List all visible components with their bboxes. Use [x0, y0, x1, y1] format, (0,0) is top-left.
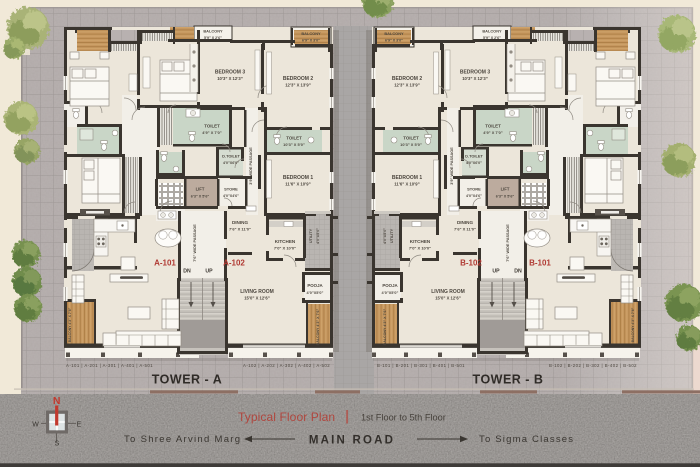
svg-text:BALCONY 4’3” X 7’6”: BALCONY 4’3” X 7’6” [631, 307, 635, 342]
svg-text:4’0”X6’0”: 4’0”X6’0” [466, 161, 482, 165]
svg-text:POOJA: POOJA [307, 283, 323, 288]
svg-text:D.TOILET: D.TOILET [222, 154, 240, 159]
svg-text:TOILET: TOILET [204, 124, 220, 129]
svg-text:BALCONY 4’3” X 7’6”: BALCONY 4’3” X 7’6” [383, 308, 387, 345]
svg-text:10’3” X 5’0”: 10’3” X 5’0” [400, 142, 422, 147]
svg-text:DINING: DINING [232, 220, 249, 225]
svg-text:6’3” X 5’6”: 6’3” X 5’6” [191, 195, 210, 199]
svg-text:BEDROOM 3: BEDROOM 3 [460, 70, 491, 76]
svg-text:E: E [77, 422, 82, 429]
svg-text:11’6” X 10’9”: 11’6” X 10’9” [394, 182, 419, 187]
svg-text:UTILITY: UTILITY [390, 228, 394, 243]
svg-text:7’6” X 11’0”: 7’6” X 11’0” [454, 227, 476, 232]
svg-text:BEDROOM 2: BEDROOM 2 [392, 76, 423, 82]
svg-text:UTILITY: UTILITY [309, 228, 313, 243]
svg-text:B-102 | B-202 | B-302 | B-402: B-102 | B-202 | B-302 | B-402 | B-502 [549, 363, 637, 368]
svg-text:10’3” X 12’3”: 10’3” X 12’3” [217, 76, 243, 81]
svg-text:Typical Floor Plan: Typical Floor Plan [238, 410, 335, 424]
svg-text:7’0” X 10’0”: 7’0” X 10’0” [409, 246, 431, 251]
svg-text:A-102 | A-202 | A-302 | A-402: A-102 | A-202 | A-302 | A-402 | A-502 [243, 363, 330, 368]
svg-text:A-101: A-101 [154, 259, 176, 268]
svg-text:4’9” X 7’0”: 4’9” X 7’0” [483, 130, 503, 135]
svg-text:TOILET: TOILET [403, 136, 419, 141]
svg-text:6’9” X 3’0”: 6’9” X 3’0” [385, 39, 403, 43]
svg-text:BEDROOM 2: BEDROOM 2 [283, 76, 314, 82]
svg-text:7’0” X 10’0”: 7’0” X 10’0” [274, 246, 296, 251]
svg-text:UP: UP [205, 269, 213, 275]
svg-text:12’3” X 13’9”: 12’3” X 13’9” [394, 83, 420, 88]
svg-text:POOJA: POOJA [382, 283, 398, 288]
svg-text:4’0”X4’6”: 4’0”X4’6” [223, 194, 239, 198]
svg-text:4’0”X5’0”: 4’0”X5’0” [307, 291, 324, 295]
svg-text:TOILET: TOILET [485, 124, 501, 129]
svg-text:BALCONY 4’3” X 7’6”: BALCONY 4’3” X 7’6” [316, 308, 320, 345]
svg-text:TOILET: TOILET [286, 136, 302, 141]
svg-text:To Shree Arvind Marg: To Shree Arvind Marg [124, 434, 241, 445]
svg-text:10’3” X 12’3”: 10’3” X 12’3” [462, 76, 488, 81]
svg-text:STORE: STORE [467, 187, 481, 192]
svg-text:A-101 | A-201 | A-301 | A-401: A-101 | A-201 | A-301 | A-401 | A-501 [66, 363, 153, 368]
svg-text:BEDROOM 3: BEDROOM 3 [215, 70, 246, 76]
svg-text:5’9” X 2’6”: 5’9” X 2’6” [483, 36, 501, 40]
svg-text:BEDROOM 1: BEDROOM 1 [392, 175, 423, 181]
svg-text:12’3” X 13’9”: 12’3” X 13’9” [285, 83, 311, 88]
svg-text:15’0” X 12’6”: 15’0” X 12’6” [435, 296, 461, 301]
svg-text:6’9” X 3’0”: 6’9” X 3’0” [302, 39, 320, 43]
svg-text:4’9” X 7’0”: 4’9” X 7’0” [202, 130, 222, 135]
svg-text:To Sigma Classes: To Sigma Classes [479, 434, 574, 445]
svg-text:DN: DN [514, 269, 522, 275]
svg-text:4’0”X5’0”: 4’0”X5’0” [382, 291, 399, 295]
svg-text:LIFT: LIFT [196, 187, 205, 192]
svg-text:TOWER - B: TOWER - B [473, 373, 544, 387]
svg-text:KITCHEN: KITCHEN [275, 239, 296, 244]
svg-text:BALCONY: BALCONY [203, 29, 223, 34]
svg-text:3’9” WIDE PASSAGE: 3’9” WIDE PASSAGE [450, 147, 454, 185]
svg-text:A-102: A-102 [223, 259, 245, 268]
svg-text:STORE: STORE [224, 187, 238, 192]
svg-text:BALCONY: BALCONY [301, 31, 321, 36]
svg-text:4’0”X5’0”: 4’0”X5’0” [316, 228, 320, 244]
svg-text:D.TOILET: D.TOILET [465, 154, 483, 159]
svg-text:7’6” WIDE PASSAGE: 7’6” WIDE PASSAGE [193, 224, 197, 262]
svg-text:BEDROOM 1: BEDROOM 1 [283, 175, 314, 181]
svg-text:BALCONY: BALCONY [384, 31, 404, 36]
svg-text:LIVING ROOM: LIVING ROOM [240, 289, 274, 295]
svg-text:6’3” X 5’6”: 6’3” X 5’6” [496, 195, 515, 199]
svg-text:4’0”X4’6”: 4’0”X4’6” [466, 194, 482, 198]
svg-text:N: N [53, 395, 61, 407]
svg-text:LIVING ROOM: LIVING ROOM [431, 289, 465, 295]
svg-text:BALCONY 4’3” X 7’6”: BALCONY 4’3” X 7’6” [68, 307, 72, 342]
svg-text:1st Floor to 5th Floor: 1st Floor to 5th Floor [361, 413, 446, 423]
svg-text:KITCHEN: KITCHEN [410, 239, 431, 244]
svg-text:7’6” X 11’0”: 7’6” X 11’0” [229, 227, 251, 232]
svg-text:B-101: B-101 [529, 259, 551, 268]
svg-text:DINING: DINING [457, 220, 474, 225]
svg-text:UP: UP [492, 269, 500, 275]
svg-text:LIFT: LIFT [501, 187, 510, 192]
svg-text:MAIN ROAD: MAIN ROAD [309, 435, 395, 447]
svg-text:TOWER - A: TOWER - A [152, 373, 222, 387]
svg-text:B-102: B-102 [460, 259, 482, 268]
svg-text:DN: DN [183, 269, 191, 275]
svg-text:BALCONY: BALCONY [482, 29, 502, 34]
svg-text:5’9” X 2’6”: 5’9” X 2’6” [204, 36, 222, 40]
svg-text:3’9” WIDE PASSAGE: 3’9” WIDE PASSAGE [249, 147, 253, 185]
svg-text:7’6” WIDE PASSAGE: 7’6” WIDE PASSAGE [506, 224, 510, 262]
svg-text:11’6” X 10’9”: 11’6” X 10’9” [285, 182, 310, 187]
svg-text:W: W [32, 422, 39, 429]
svg-text:B-101 | B-201 | B-301 | B-401: B-101 | B-201 | B-301 | B-401 | B-501 [377, 363, 465, 368]
svg-text:4’0”X6’0”: 4’0”X6’0” [223, 161, 239, 165]
svg-text:S: S [55, 441, 60, 448]
svg-text:15’0” X 12’6”: 15’0” X 12’6” [244, 296, 270, 301]
svg-text:4’0”X5’0”: 4’0”X5’0” [383, 228, 387, 244]
svg-text:10’3” X 5’0”: 10’3” X 5’0” [283, 142, 305, 147]
